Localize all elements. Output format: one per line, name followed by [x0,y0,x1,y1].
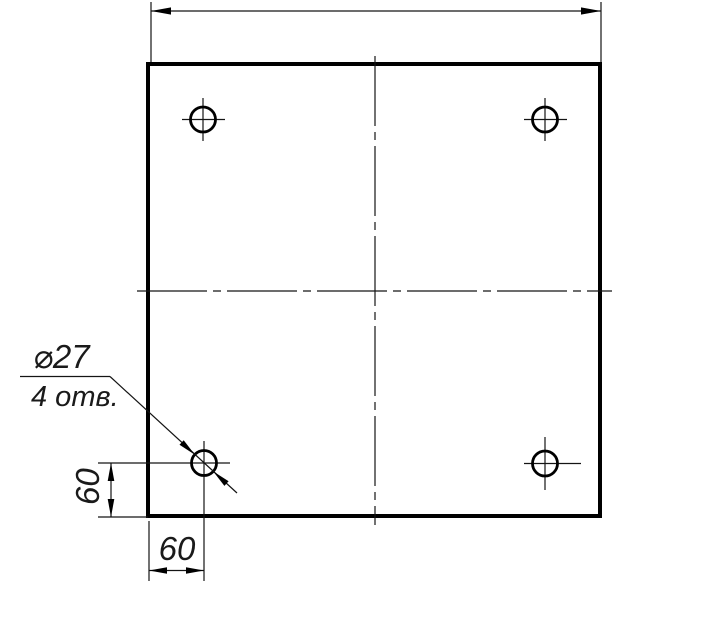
plate-outline [148,64,600,516]
hole-top-left [182,98,225,141]
leader-arrowhead-lower-icon [213,471,228,486]
arrowhead-right-icon [581,7,601,14]
hole-top-right [524,98,567,141]
arrowhead-right-icon [186,567,204,574]
leader-arrowhead-upper-icon [180,440,195,455]
plate-centerlines [137,56,612,525]
plate-drawing-svg: ⌀27 4 отв. 60 60 [0,0,713,631]
technical-drawing-canvas: ⌀27 4 отв. 60 60 [0,0,713,631]
arrowhead-up-icon [108,463,115,481]
arrowhead-down-icon [108,499,115,517]
vertical-offset-dimension: 60 [69,463,148,517]
callout-hole-count-label: 4 отв. [31,381,119,413]
top-width-dimension [151,2,601,64]
vertical-offset-value: 60 [69,468,106,505]
arrowhead-left-icon [151,7,171,14]
arrowhead-left-icon [149,567,167,574]
horizontal-offset-dimension: 60 [149,521,204,581]
horizontal-offset-value: 60 [159,530,196,567]
hole-bottom-right [524,437,581,490]
callout-diameter-label: ⌀27 [33,338,91,375]
